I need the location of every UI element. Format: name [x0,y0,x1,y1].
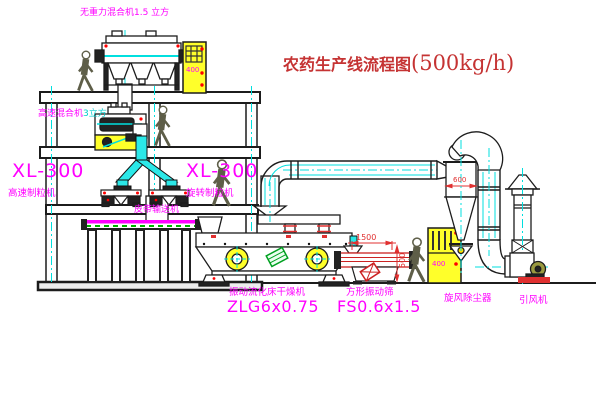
belt-surface [84,220,198,224]
title-capacity: (500kg/h) [411,51,514,75]
label-granulator-right-name: 旋转制粒机 [186,189,234,199]
worker-top-floor [79,51,93,91]
exhaust-duct [261,161,458,222]
dryer-feed-hopper [198,217,222,233]
cabinet2-mark: 400 [432,261,445,268]
cabinet1-mark: 400 [186,67,199,74]
diagram-title: 农药生产线流程图(500kg/h) [283,51,514,75]
label-dryer-model: ZLG6x0.75 [227,299,319,315]
label-granulator-left-model: XL-300 [12,162,84,181]
fan-base [518,277,550,283]
label-floor2-mixer-size: 3立方 [83,109,107,119]
dim-screen-side: 500 [399,253,407,268]
label-granulator-right-model: XL-300 [186,162,258,181]
floor-beam-mid [40,147,260,158]
belt-conveyor [81,219,201,282]
label-granulator-left-name: 高速制粒机 [8,189,56,199]
floor-beam-top [40,92,260,103]
dim-screen-length: 1500 [356,234,376,242]
induced-draft-fan [505,253,550,283]
label-cyclone: 旋风除尘器 [444,294,492,304]
label-floor2-mixer-name: 高速混合机 [38,109,83,119]
title-text: 农药生产线流程图 [283,55,411,74]
label-screen-model: FS0.6x1.5 [337,299,421,315]
worker-ground [409,238,424,282]
flow-diagram-canvas: 农药生产线流程图(500kg/h) 无重力混合机1.5 立方 高速混合机3立方 … [0,0,600,403]
control-cabinet-2 [428,228,461,283]
label-fan: 引风机 [519,296,548,306]
label-top-mixer: 无重力混合机1.5 立方 [80,9,169,18]
label-belt-conveyor: 皮带输送机 [134,206,179,215]
label-floor2-mixer: 高速混合机3立方 [38,110,107,119]
dim-cyclone-diameter: 600 [453,177,466,184]
